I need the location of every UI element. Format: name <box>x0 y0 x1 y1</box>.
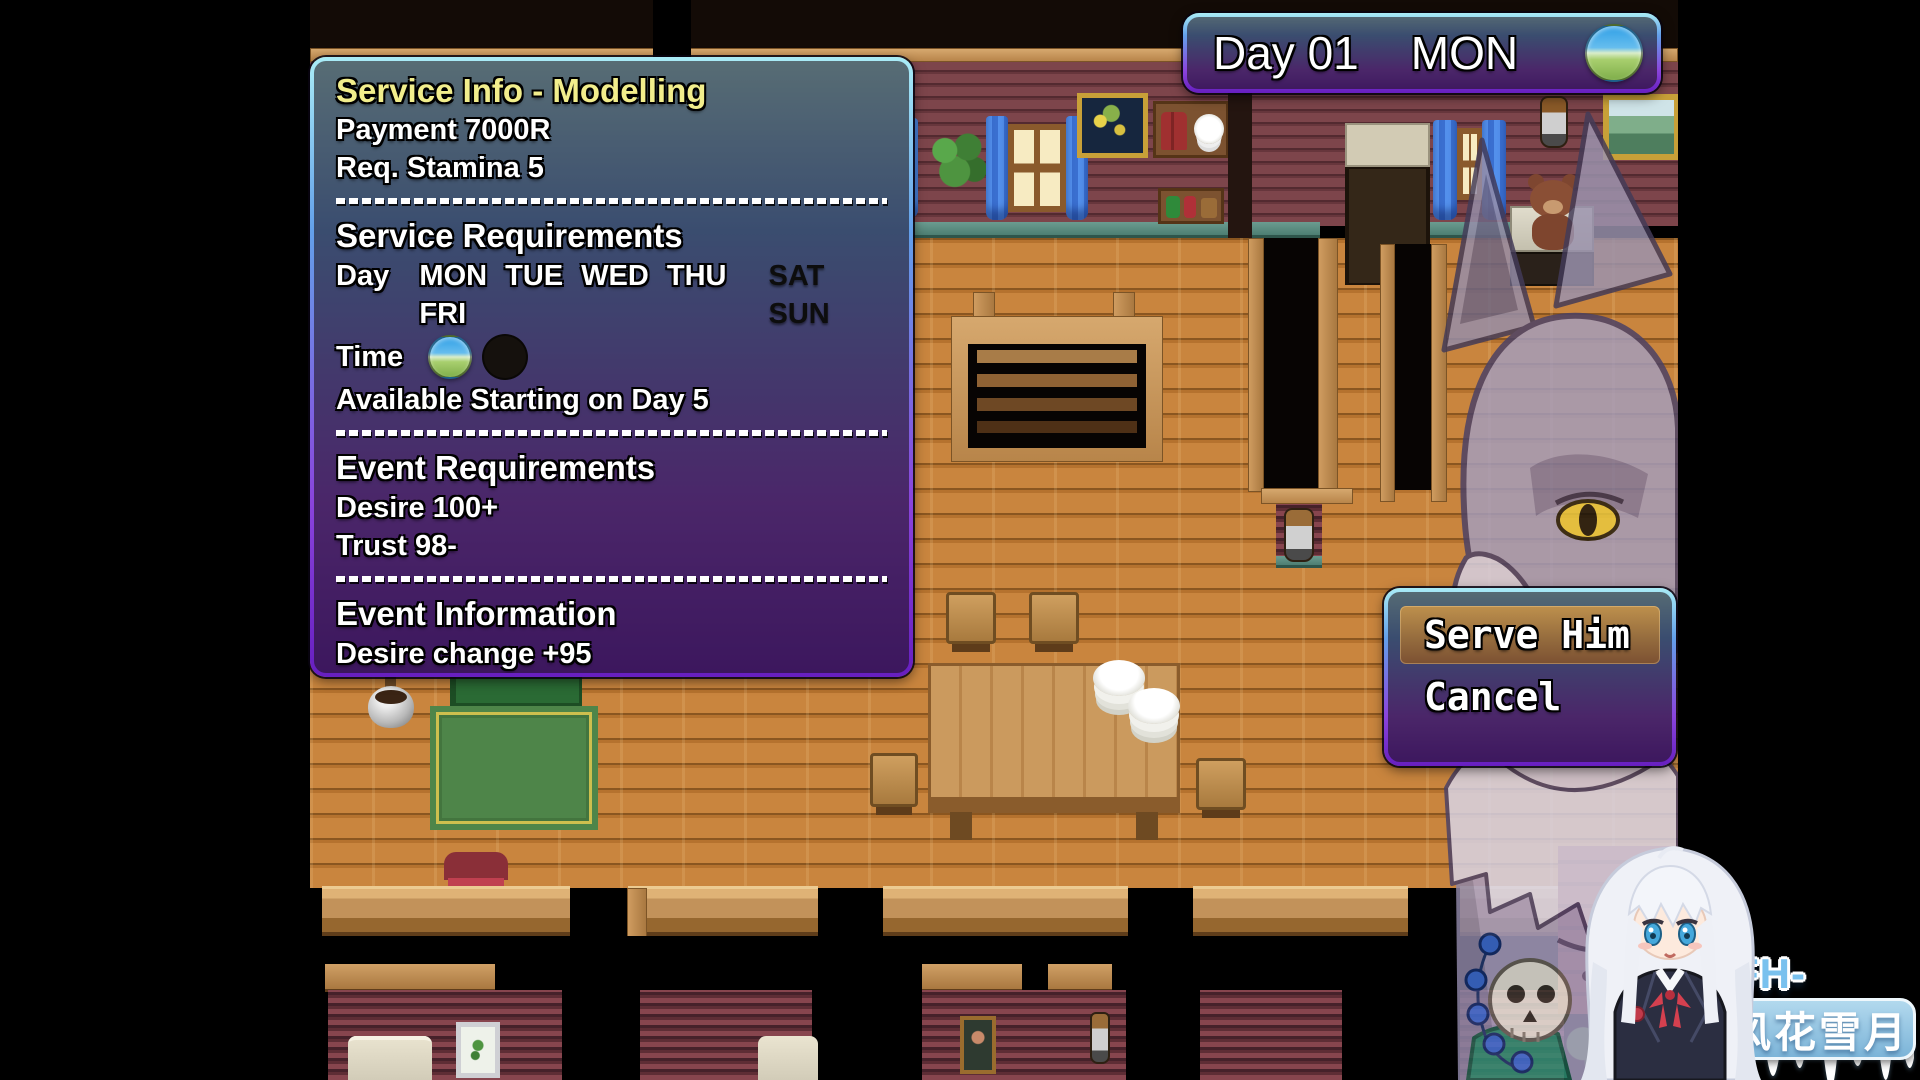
days-available: MON TUE WED THU FRI <box>419 257 756 333</box>
stamina-line: Req. Stamina 5 <box>336 149 891 187</box>
stool <box>1029 592 1079 644</box>
desire-change: Desire change +95 <box>336 635 891 673</box>
room-lantern <box>1090 1012 1110 1064</box>
green-carpet <box>430 706 598 830</box>
red-bottles <box>1161 112 1187 150</box>
night-cycle-icon <box>482 334 528 380</box>
plate-stack-shelf <box>1194 114 1224 144</box>
plant-picture <box>456 1022 500 1078</box>
alcove-lantern <box>1284 508 1314 562</box>
skull-ornament <box>1490 960 1570 1040</box>
chair-back <box>444 852 508 880</box>
day-cycle-icon <box>428 335 472 379</box>
inner-beam <box>325 964 495 992</box>
white-bed <box>758 1036 818 1080</box>
day-cycle-icon <box>1585 24 1643 82</box>
green-cabinet <box>450 674 582 706</box>
table-leg <box>950 812 972 840</box>
stair-step-2 <box>977 374 1137 387</box>
stair-step-1 <box>977 350 1137 363</box>
stool <box>946 592 996 644</box>
weekday: MON <box>1411 26 1518 80</box>
portrait-picture <box>960 1016 996 1074</box>
event-information-heading: Event Information <box>336 593 891 635</box>
green-bottle <box>1166 196 1180 218</box>
wall-opening <box>1264 238 1318 490</box>
red-bottle <box>1184 196 1196 218</box>
inner-beam <box>1048 964 1112 992</box>
wall-post-c <box>1380 244 1395 502</box>
white-bed <box>348 1036 432 1080</box>
wall-post-a <box>1248 238 1264 492</box>
availability-note: Available Starting on Day 5 <box>336 381 891 419</box>
bottle-shelf <box>1153 101 1229 158</box>
wolf-pupil <box>1579 504 1597 536</box>
screenshot-root: Service Info - Modelling Payment 7000R R… <box>0 0 1920 1080</box>
bottom-beam <box>883 886 1128 936</box>
day-hud: Day 01 MON <box>1183 13 1661 93</box>
days-unavailable: SAT SUN <box>769 257 892 333</box>
separator <box>336 430 887 436</box>
hanging-plant <box>925 126 991 196</box>
plant-soil <box>375 690 407 704</box>
green-bottle-shelf <box>1158 188 1224 224</box>
choice-serve-him[interactable]: Serve Him <box>1400 606 1660 664</box>
jar <box>1201 198 1217 218</box>
bottom-beam <box>628 886 818 936</box>
service-info-panel: Service Info - Modelling Payment 7000R R… <box>310 57 913 677</box>
bottom-beam <box>1193 886 1408 936</box>
stair-step-3 <box>977 398 1137 411</box>
choice-cancel[interactable]: Cancel <box>1400 668 1660 726</box>
time-label: Time <box>336 338 428 376</box>
table-leg <box>1136 812 1158 840</box>
room-wall <box>1200 990 1342 1080</box>
time-row: Time <box>336 333 891 381</box>
stair-step-4 <box>977 421 1137 433</box>
desire-requirement: Desire 100+ <box>336 489 891 527</box>
plate-stack <box>1093 660 1145 696</box>
panel-title: Service Info - Modelling <box>336 71 891 111</box>
wolf-right-ear <box>1556 114 1670 306</box>
inner-beam <box>922 964 1022 992</box>
flower-painting <box>1077 93 1148 158</box>
ceiling-gap <box>653 0 691 62</box>
window <box>1008 124 1066 212</box>
stool <box>1196 758 1246 810</box>
trust-requirement: Trust 98- <box>336 527 891 565</box>
stool <box>870 753 918 807</box>
separator <box>336 198 887 204</box>
wardrobe-top <box>1345 123 1430 167</box>
day-number: Day 01 <box>1213 26 1359 80</box>
bottom-beam <box>322 886 570 936</box>
curtain-left <box>986 116 1008 220</box>
mascot-girl <box>1563 842 1778 1080</box>
wall-opening-2 <box>1395 244 1431 490</box>
payment-line: Payment 7000R <box>336 111 891 149</box>
event-requirements-heading: Event Requirements <box>336 447 891 489</box>
separator <box>336 576 887 582</box>
day-row: Day MON TUE WED THU FRI SAT SUN <box>336 257 891 333</box>
wall-post-b <box>1318 238 1338 504</box>
plate-stack <box>1128 688 1180 724</box>
service-requirements-heading: Service Requirements <box>336 215 891 257</box>
day-label: Day <box>336 257 419 295</box>
wall-cap-beam <box>1261 488 1353 504</box>
choice-menu: Serve Him Cancel <box>1384 588 1676 766</box>
